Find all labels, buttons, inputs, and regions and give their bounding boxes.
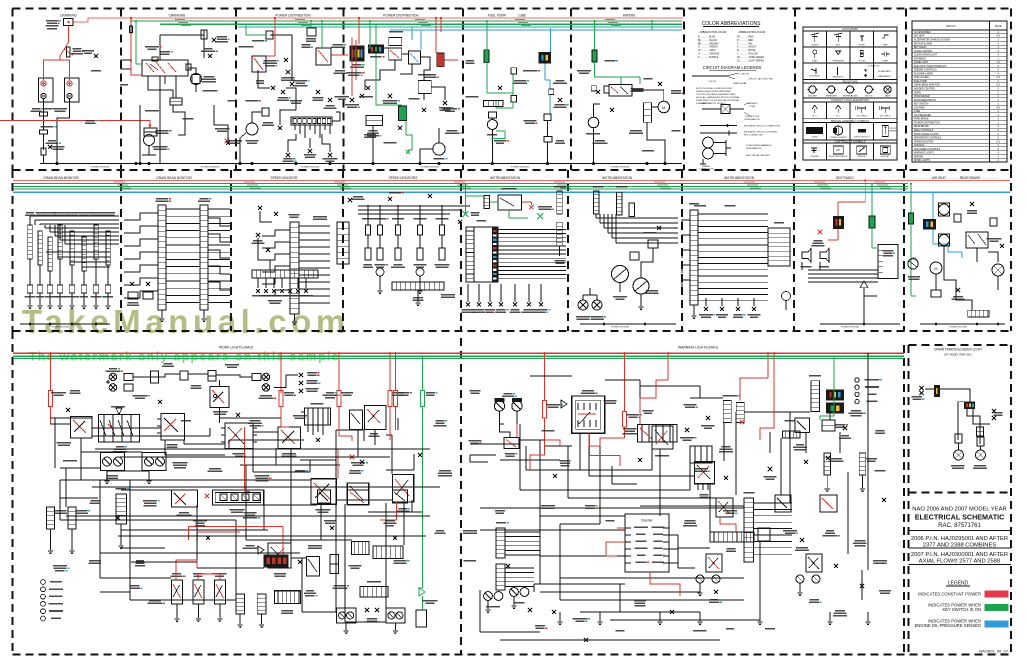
svg-text:NAO001_06_07: NAO001_06_07 (979, 649, 1008, 654)
svg-text:GY ........... GRAY: GY ........... GRAY (698, 49, 716, 52)
svg-text:W ............ WHITE: W ............ WHITE (737, 50, 756, 52)
svg-text:AXIAL FLOW® 2577 AND 2588: AXIAL FLOW® 2577 AND 2588 (919, 558, 1000, 565)
svg-text:POWER GROUND: POWER GROUND (611, 167, 630, 169)
svg-text:SOME WIRE COLORS INDICATE EXTE: SOME WIRE COLORS INDICATE EXTERNAL (696, 99, 740, 102)
svg-text:MOTOR: MOTOR (865, 95, 873, 97)
svg-text:μP: μP (836, 148, 840, 152)
svg-text:KEY SWITCH: KEY SWITCH (914, 104, 929, 106)
svg-text:SPEED MONITOR: SPEED MONITOR (271, 176, 298, 180)
svg-text:SWITCH: SWITCH (702, 103, 711, 105)
svg-text:DG ........... DARK GREEN: DG ........... DARK GREEN (737, 56, 764, 59)
svg-text:DESIGNATION: DESIGNATION (745, 118, 760, 121)
svg-text:CIRCUIT: CIRCUIT (741, 74, 751, 76)
svg-text:AIR SEAT: AIR SEAT (914, 35, 925, 38)
svg-text:ACCESSORIES: ACCESSORIES (914, 31, 931, 34)
svg-text:DOME LIGHT: DOME LIGHT (914, 62, 929, 64)
svg-text:DESIGNATION: DESIGNATION (746, 147, 761, 150)
svg-text:PRESSURE: PRESSURE (832, 61, 844, 63)
svg-text:PRESSURE: PRESSURE (826, 95, 838, 97)
svg-text:SENSOR: SENSOR (858, 156, 867, 158)
svg-text:COMPONENT/HARNESS: COMPONENT/HARNESS (746, 144, 772, 147)
svg-text:ALTERNATOR CHARGE SYSTEM: ALTERNATOR CHARGE SYSTEM (914, 39, 950, 42)
svg-text:HORN: HORN (914, 92, 921, 94)
svg-text:LEVER: LEVER (811, 45, 818, 47)
svg-text:POWER GROUND: POWER GROUND (511, 167, 530, 169)
svg-text:WIPERS: WIPERS (623, 14, 636, 18)
svg-text:PAGE: PAGE (995, 25, 1002, 28)
svg-text:POWER GROUND: POWER GROUND (91, 167, 110, 169)
svg-text:Y ............. YELLOW: Y ............. YELLOW (737, 54, 758, 56)
svg-text:CRANKING: CRANKING (914, 57, 926, 60)
svg-text:HARNESS: HARNESS (747, 102, 758, 105)
svg-text:SPEED MONITOR: SPEED MONITOR (914, 141, 934, 143)
svg-text:ENGINE OIL PRESSURE SENSED: ENGINE OIL PRESSURE SENSED (915, 623, 981, 628)
svg-text:INSTRUMENTATION: INSTRUMENTATION (914, 99, 936, 102)
svg-text:MAGNETIC: MAGNETIC (833, 76, 844, 79)
svg-text:LG ........... LIGHT GREEN: LG ........... LIGHT GREEN (737, 60, 764, 62)
svg-text:POWER GROUND: POWER GROUND (421, 167, 440, 169)
svg-text:MICROPROCESSOR: MICROPROCESSOR (829, 156, 848, 158)
svg-text:M: M (662, 105, 665, 110)
svg-text:B ............. BLUE: B ............. BLUE (698, 37, 716, 39)
svg-text:INSTRUMENTATION: INSTRUMENTATION (490, 176, 521, 180)
svg-text:CIGAR LIGHTER: CIGAR LIGHTER (914, 50, 932, 53)
svg-text:CIRCUIT: CIRCUIT (946, 25, 957, 28)
svg-text:BACKUP ALARM: BACKUP ALARM (914, 42, 932, 45)
svg-text:FEEDER CONTROLS: FEEDER CONTROLS (914, 70, 937, 72)
svg-text:KEY: KEY (836, 45, 841, 47)
svg-text:HEADER CONTROL: HEADER CONTROL (914, 88, 936, 91)
svg-text:INDICATES CONSTANT POWER: INDICATES CONSTANT POWER (918, 592, 981, 597)
svg-text:BR ........... BROWN: BR ........... BROWN (698, 43, 719, 45)
svg-text:COLOR: COLOR (708, 81, 716, 83)
svg-text:COLOR ABBREVIATIONS: COLOR ABBREVIATIONS (702, 21, 761, 27)
svg-text:KEY SWITCH IS ON: KEY SWITCH IS ON (942, 607, 981, 612)
svg-text:R ............. RED: R ............. RED (737, 40, 753, 42)
svg-text:FUEL PUMP: FUEL PUMP (488, 14, 506, 18)
svg-text:PUSH: PUSH (859, 45, 865, 47)
svg-text:POWER GROUND: POWER GROUND (301, 167, 320, 169)
svg-text:2377 AND 2388 COMBINES: 2377 AND 2388 COMBINES (923, 543, 997, 549)
svg-text:POWER GROUND: POWER GROUND (611, 327, 629, 329)
svg-text:SOLENOID: SOLENOID (809, 76, 820, 78)
svg-text:LAMP: LAMP (885, 94, 891, 97)
svg-text:BK ........... BLACK: BK ........... BLACK (698, 39, 717, 42)
svg-text:N.O.: N.O. (813, 116, 818, 118)
svg-text:TIME: TIME (883, 45, 889, 47)
svg-text:REAR BRAKE: REAR BRAKE (960, 176, 981, 180)
svg-text:TAILINGS: TAILINGS (914, 144, 925, 147)
svg-text:ROAD SIGNAL LIGHTS: ROAD SIGNAL LIGHTS (914, 133, 939, 136)
svg-text:PARK BRAKE: PARK BRAKE (914, 118, 929, 121)
svg-text:TEMP: TEMP (882, 61, 888, 63)
svg-text:POWER GROUND: POWER GROUND (201, 167, 220, 169)
svg-text:SEPARATOR CONTROLS: SEPARATOR CONTROLS (914, 137, 942, 140)
svg-text:INSTRUMENTATION: INSTRUMENTATION (724, 176, 755, 180)
svg-text:ACTUATORS: ACTUATORS (842, 27, 858, 31)
svg-text:FUEL GAUGE: FUEL GAUGE (914, 76, 929, 79)
svg-text:JUNCTION BOLT: JUNCTION BOLT (854, 137, 871, 139)
svg-text:AIR SEAT: AIR SEAT (932, 176, 946, 180)
svg-text:CONNECTION: CONNECTION (699, 169, 714, 171)
svg-text:LUBE: LUBE (914, 111, 920, 113)
svg-text:N.C.: N.C. (836, 116, 841, 118)
svg-text:GROUND: GROUND (811, 156, 820, 158)
svg-text:NOTE: PHYSICAL LOCATION NOTED: NOTE: PHYSICAL LOCATION NOTED (696, 87, 733, 90)
svg-text:CLEAN GRAIN LIGHT: CLEAN GRAIN LIGHT (914, 54, 938, 57)
svg-text:FUEL PUMP: FUEL PUMP (914, 81, 928, 83)
svg-text:WORK LIGHTS: WORK LIGHTS (914, 160, 931, 162)
svg-text:INSTRUMENTATION: INSTRUMENTATION (602, 176, 633, 180)
svg-text:POWER GROUND: POWER GROUND (51, 327, 69, 329)
svg-text:POWER DISTRIBUTION: POWER DISTRIBUTION (914, 123, 940, 125)
svg-text:GRAIN BEAN MONITOR: GRAIN BEAN MONITOR (914, 84, 940, 87)
svg-text:POWER DISTRIBUTION: POWER DISTRIBUTION (383, 14, 419, 18)
svg-text:LUBE: LUBE (518, 14, 526, 18)
svg-text:CONNECTOR ASSY: CONNECTOR ASSY (829, 136, 847, 139)
svg-text:DISPLAY: DISPLAY (881, 155, 890, 158)
svg-text:MOMENTARY: MOMENTARY (878, 70, 891, 73)
svg-text:O ............. ORANGE: O ............. ORANGE (698, 53, 720, 56)
svg-text:CONTACT LOGIC ELEVATIONS: CONTACT LOGIC ELEVATIONS (831, 98, 869, 102)
svg-text:REEL CONTROLS: REEL CONTROLS (914, 130, 934, 132)
svg-text:WIRE DETAIL: WIRE DETAIL (733, 82, 748, 85)
svg-text:GRAIN BEAN MONITOR: GRAIN BEAN MONITOR (43, 176, 79, 180)
svg-text:NOT CONNECTED: NOT CONNECTED (744, 135, 763, 137)
svg-text:SPEED MONITORS: SPEED MONITORS (389, 176, 418, 180)
svg-text:ABBREVIATION-COLOR: ABBREVIATION-COLOR (700, 31, 727, 34)
svg-text:MAINTAINED: MAINTAINED (878, 75, 891, 78)
svg-text:POWER GROUND: POWER GROUND (949, 327, 967, 329)
svg-text:POWER DISTRIBUTION: POWER DISTRIBUTION (275, 14, 311, 18)
svg-text:WORK LIGHTS (NAO): WORK LIGHTS (NAO) (219, 346, 253, 350)
svg-text:G ............. GREEN: G ............. GREEN (698, 47, 718, 49)
svg-text:FLOW: FLOW (859, 61, 865, 63)
svg-text:2006 P.I.N. HAJ0295001 AND AFT: 2006 P.I.N. HAJ0295001 AND AFTER (911, 536, 1008, 542)
svg-text:M: M (935, 267, 938, 271)
svg-text:ABBREVIATION-COLOR: ABBREVIATION-COLOR (739, 31, 766, 34)
svg-text:GRAIN BEAN MONITOR: GRAIN BEAN MONITOR (156, 176, 192, 180)
svg-text:WARNING LIGHTS (NAO): WARNING LIGHTS (NAO) (678, 346, 718, 350)
svg-text:CIRCUITS INDICATES DIFFERENT: CIRCUITS INDICATES DIFFERENT WIRE (696, 93, 736, 96)
svg-text:INDICATES CIRCUIT CROSSING: INDICATES CIRCUIT CROSSING (744, 131, 778, 134)
svg-text:LIMIT: LIMIT (812, 61, 818, 63)
svg-text:PK ........... PINK: PK ........... PINK (737, 37, 754, 39)
svg-text:CONTACTS: CONTACTS (868, 65, 880, 68)
svg-text:CIRCUIT DIAGRAM LEGENDS: CIRCUIT DIAGRAM LEGENDS (703, 65, 762, 70)
svg-text:HOUR METER: HOUR METER (914, 96, 930, 98)
svg-text:ELECTRICAL GROUND: ELECTRICAL GROUND (746, 154, 770, 157)
svg-text:T ............. TAN: T ............. TAN (737, 42, 753, 45)
svg-text:LIGHTING: LIGHTING (914, 107, 925, 109)
svg-text:TEMPERATURE: TEMPERATURE (843, 94, 859, 97)
svg-text:BREAKER: BREAKER (889, 129, 898, 132)
svg-text:ELECTRIC OVER HYDRAULIC: ELECTRIC OVER HYDRAULIC (914, 65, 947, 68)
svg-text:Flasher: Flasher (641, 519, 653, 523)
svg-text:UNLOADER CONTROLS: UNLOADER CONTROLS (914, 148, 941, 151)
svg-text:WIPERS: WIPERS (914, 156, 924, 158)
svg-text:CRANKING: CRANKING (60, 14, 77, 18)
svg-text:OIL PRESSURE: OIL PRESSURE (914, 115, 931, 117)
svg-text:GRAIN TANK/UNLOADER LIGHT: GRAIN TANK/UNLOADER LIGHT (934, 348, 982, 352)
svg-text:WARNING LIGHTS: WARNING LIGHTS (914, 152, 934, 155)
svg-text:CONNECTOR: CONNECTOR (745, 116, 759, 118)
svg-text:POWER GROUND: POWER GROUND (841, 327, 859, 329)
svg-text:RAC. 87571761: RAC. 87571761 (938, 523, 981, 529)
svg-text:V ............. VIOLET: V ............. VIOLET (737, 47, 757, 49)
svg-text:NOTE: ALL HARNESSES INPUTS E: NOTE: ALL HARNESSES INPUTS EXTERNAL (696, 96, 740, 99)
svg-text:FUSE: FUSE (812, 137, 818, 139)
svg-text:N.O. HELD: N.O. HELD (857, 116, 868, 118)
svg-text:REAR BRAKE: REAR BRAKE (914, 125, 929, 128)
svg-text:INDICATES CIRCUIT CONNECTION: INDICATES CIRCUIT CONNECTION (744, 125, 781, 128)
svg-text:N.C. HELD: N.C. HELD (880, 116, 891, 118)
svg-text:SPECIAL ASSEMBLY SYMBOLS: SPECIAL ASSEMBLY SYMBOLS (831, 119, 870, 123)
svg-text:BLOWER: BLOWER (808, 95, 817, 97)
svg-text:2007 P.I.N. HAJ0300001 AND AFT: 2007 P.I.N. HAJ0300001 AND AFTER (911, 552, 1008, 558)
svg-text:TakeManual.com: TakeManual.com (22, 303, 350, 340)
svg-text:BDT RADIO: BDT RADIO (914, 46, 927, 49)
svg-text:P ............. PURPLE: P ............. PURPLE (698, 57, 719, 59)
svg-text:BDT RADIO: BDT RADIO (836, 176, 854, 180)
svg-text:WHERE HIGHLIGHTED WIRES AND: WHERE HIGHLIGHTED WIRES AND (696, 90, 731, 93)
svg-text:CONN: CONN (749, 106, 756, 108)
svg-text:ELECTRICAL SCHEMATIC: ELECTRICAL SCHEMATIC (915, 513, 1005, 522)
svg-text:CRANKING: CRANKING (169, 14, 186, 18)
svg-text:CIRCUIT TACT RECORD: CIRCUIT TACT RECORD (748, 78, 773, 81)
svg-text:RESISTORS: RESISTORS (843, 80, 858, 84)
svg-text:FLASHER LAMPS: FLASHER LAMPS (914, 72, 933, 75)
svg-text:2007 MODEL YEAR ONLY: 2007 MODEL YEAR ONLY (944, 354, 973, 357)
